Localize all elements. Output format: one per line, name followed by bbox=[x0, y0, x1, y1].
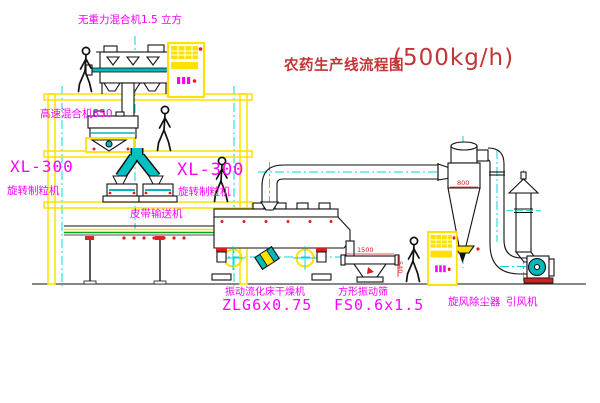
granulator-right-model: XL-300 bbox=[177, 162, 244, 180]
square-sieve bbox=[341, 254, 399, 282]
induced-draft-fan bbox=[524, 256, 554, 283]
cyclone-label: 旋风除尘器 bbox=[448, 297, 501, 308]
granulator-left-name: 旋转制粒机 bbox=[7, 186, 60, 197]
granulator-left-model: XL-300 bbox=[10, 159, 74, 176]
sieve-model-label: FS0.6x1.5 bbox=[334, 298, 424, 314]
exhaust-duct bbox=[261, 163, 450, 210]
gravity-mixer-label: 无重力混合机1.5 立方 bbox=[78, 15, 182, 26]
y-chute bbox=[113, 148, 163, 184]
control-cabinet-top bbox=[168, 43, 204, 97]
person-figure bbox=[158, 106, 171, 150]
exhaust-stack bbox=[506, 172, 541, 262]
sieve-height-dimension: 540 bbox=[396, 261, 404, 273]
fluid-bed-dryer bbox=[212, 203, 354, 280]
person-figure bbox=[407, 237, 420, 281]
cad-flow-diagram: 农药生产线流程图 (500kg/h) 无重力混合机1.5 立方 高速混合机350… bbox=[0, 0, 600, 403]
sieve-length-dimension: 1500 bbox=[357, 246, 374, 254]
cyclone-dimension: 800 bbox=[457, 179, 469, 187]
fan-label: 引风机 bbox=[506, 297, 538, 308]
control-cabinet-right bbox=[428, 232, 457, 285]
granulator-right-name: 旋转制粒机 bbox=[178, 187, 231, 198]
belt-conveyor-label: 皮带输送机 bbox=[130, 209, 183, 220]
granulator-left bbox=[103, 184, 141, 202]
high-speed-mixer-label: 高速混合机350 bbox=[40, 109, 113, 120]
diagram-title: 农药生产线流程图 bbox=[284, 54, 404, 75]
vibration-motor-icon bbox=[255, 247, 279, 270]
dryer-model-label: ZLG6x0.75 bbox=[222, 298, 312, 314]
diagram-capacity: (500kg/h) bbox=[393, 45, 514, 71]
granulator-right bbox=[139, 184, 177, 202]
